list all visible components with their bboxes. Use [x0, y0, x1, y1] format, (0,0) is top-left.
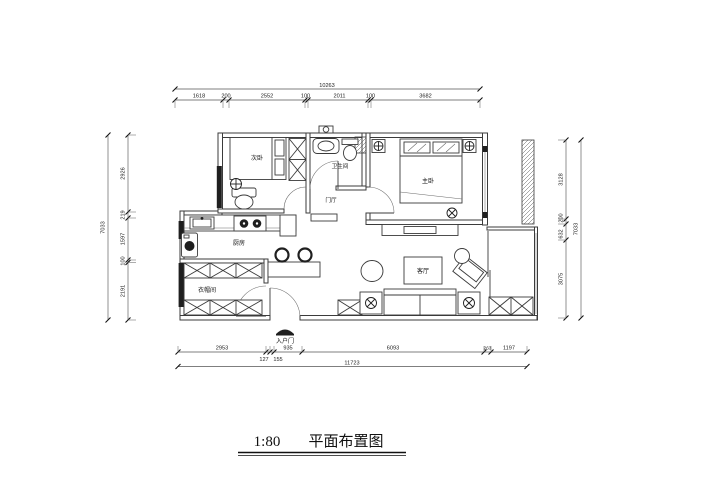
room-label-entrance: 入户门 — [276, 337, 294, 345]
wardrobe — [289, 139, 306, 181]
room-label-second-bedroom: 次卧 — [251, 154, 263, 162]
ceiling-lamp-icon — [374, 142, 383, 151]
dim-top-seg-5: 100 — [366, 94, 375, 100]
dim-left-total: 7033 — [101, 221, 107, 233]
stove — [234, 216, 266, 231]
dim-right-seg-0: 3128 — [559, 173, 565, 185]
dim-bottom-seg-6: 1197 — [503, 346, 515, 352]
ceiling-lamp-icon — [464, 298, 475, 309]
dim-bottom-seg-4: 6093 — [387, 346, 399, 352]
window-icon — [483, 212, 488, 218]
dim-top-seg-3: 100 — [301, 94, 310, 100]
dim-left-seg-4: 2191 — [121, 285, 127, 297]
side-table-round — [361, 261, 383, 282]
door-arc — [270, 288, 300, 316]
hall-cabinet — [311, 214, 337, 221]
dim-left-seg-3: 100 — [121, 256, 127, 265]
title-scale: 1:80 — [254, 434, 281, 450]
window-icon — [179, 263, 184, 307]
room-label-cloakroom: 衣帽间 — [198, 286, 216, 294]
ceiling-lamp-icon — [366, 298, 377, 309]
washbasin — [313, 139, 339, 154]
dimension-top: 10263 1618 200 2552 100 2011 100 3682 — [173, 83, 483, 108]
dim-left-seg-0: 2926 — [121, 167, 127, 179]
dim-top-seg-1: 200 — [221, 94, 230, 100]
sofa — [384, 289, 456, 315]
dim-bottom-seg-2: 155 — [273, 357, 282, 363]
room-label-living-room: 客厅 — [417, 267, 429, 275]
ceiling-lamp-icon — [447, 208, 457, 218]
bed-master — [400, 139, 462, 203]
dim-right-seg-3: 3075 — [559, 273, 565, 285]
ac-platform — [522, 140, 534, 224]
shoe-cabinet — [338, 300, 362, 315]
window-icon — [483, 146, 488, 152]
kitchen-sink — [190, 217, 214, 229]
cloakroom-wardrobe-bottom — [184, 300, 262, 315]
room-label-bathroom: 卫生间 — [332, 162, 349, 170]
dim-left-seg-2: 1597 — [121, 233, 127, 245]
door-arc — [284, 187, 306, 209]
dim-top-total: 10263 — [319, 83, 335, 89]
ceiling-lamp-icon — [231, 179, 242, 190]
room-label-master-bedroom: 主卧 — [422, 177, 434, 185]
balcony-cabinet — [489, 297, 533, 315]
dim-top-seg-4: 2011 — [333, 94, 345, 100]
bar-counter — [268, 262, 320, 277]
washing-machine — [182, 233, 198, 257]
vent-flue — [319, 126, 333, 133]
dim-top-seg-2: 2552 — [261, 94, 273, 100]
tv-cabinet — [382, 225, 458, 236]
ceiling-lamp-icon — [465, 142, 474, 151]
window-icon — [217, 166, 222, 208]
title-block: 1:80 平面布置图 — [238, 433, 406, 456]
title-name: 平面布置图 — [308, 433, 383, 450]
dim-right-total: 7033 — [574, 223, 580, 235]
entrance-canopy-icon — [276, 330, 294, 336]
dim-left-seg-1: 219 — [121, 210, 127, 219]
dim-right-seg-2: 632 — [559, 229, 565, 238]
room-label-kitchen: 厨房 — [233, 239, 245, 247]
floor-lamp — [455, 249, 470, 264]
dim-bottom-seg-5: 263 — [484, 346, 492, 351]
toilet — [342, 139, 358, 161]
cloakroom-wardrobe-top — [184, 263, 262, 278]
dim-bottom-seg-3: 935 — [283, 346, 292, 352]
dimension-left: 7033 2926 219 1597 100 2191 — [101, 133, 137, 323]
floor-plan-canvas: 10263 1618 200 2552 100 2011 100 3682 — [0, 0, 728, 485]
dim-top-seg-6: 3682 — [419, 94, 431, 100]
dim-right-seg-1: 200 — [559, 213, 565, 222]
door-arc — [368, 187, 394, 213]
dim-top-seg-0: 1618 — [193, 94, 205, 100]
dim-bottom-seg-0: 2953 — [216, 346, 228, 352]
dimension-right: 3128 200 632 3075 7033 — [558, 138, 584, 321]
floor-plan-page: 10263 1618 200 2552 100 2011 100 3682 — [0, 0, 728, 485]
bar-chair — [276, 249, 289, 262]
bar-chair — [299, 249, 312, 262]
room-label-foyer: 门厅 — [325, 196, 337, 204]
dimension-bottom: 2953 127 155 935 6093 263 1197 11723 — [176, 346, 530, 370]
dim-bottom-seg-1: 127 — [259, 357, 268, 363]
chair — [235, 195, 253, 209]
dim-bottom-total: 11723 — [344, 361, 359, 367]
kitchen-cabinet — [280, 215, 296, 236]
